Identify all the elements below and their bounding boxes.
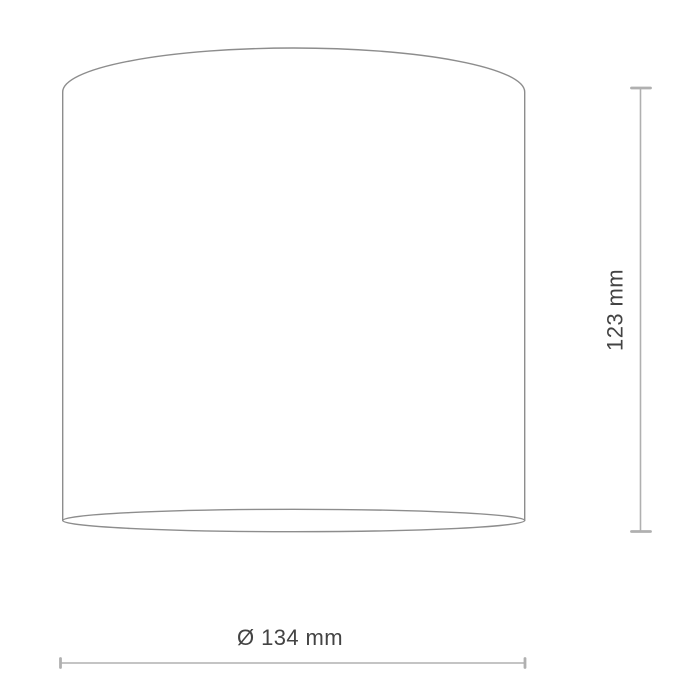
cylinder-body-outline: [63, 48, 525, 521]
cylinder-dimension-diagram: 123 mm Ø 134 mm: [0, 0, 700, 700]
diameter-dimension-label: Ø 134 mm: [237, 625, 343, 650]
height-dimension-label: 123 mm: [603, 269, 628, 351]
cylinder-bottom-rim: [63, 509, 525, 531]
diameter-dimension: Ø 134 mm: [61, 625, 526, 668]
technical-drawing-canvas: 123 mm Ø 134 mm: [0, 0, 700, 700]
height-dimension: 123 mm: [603, 88, 651, 532]
